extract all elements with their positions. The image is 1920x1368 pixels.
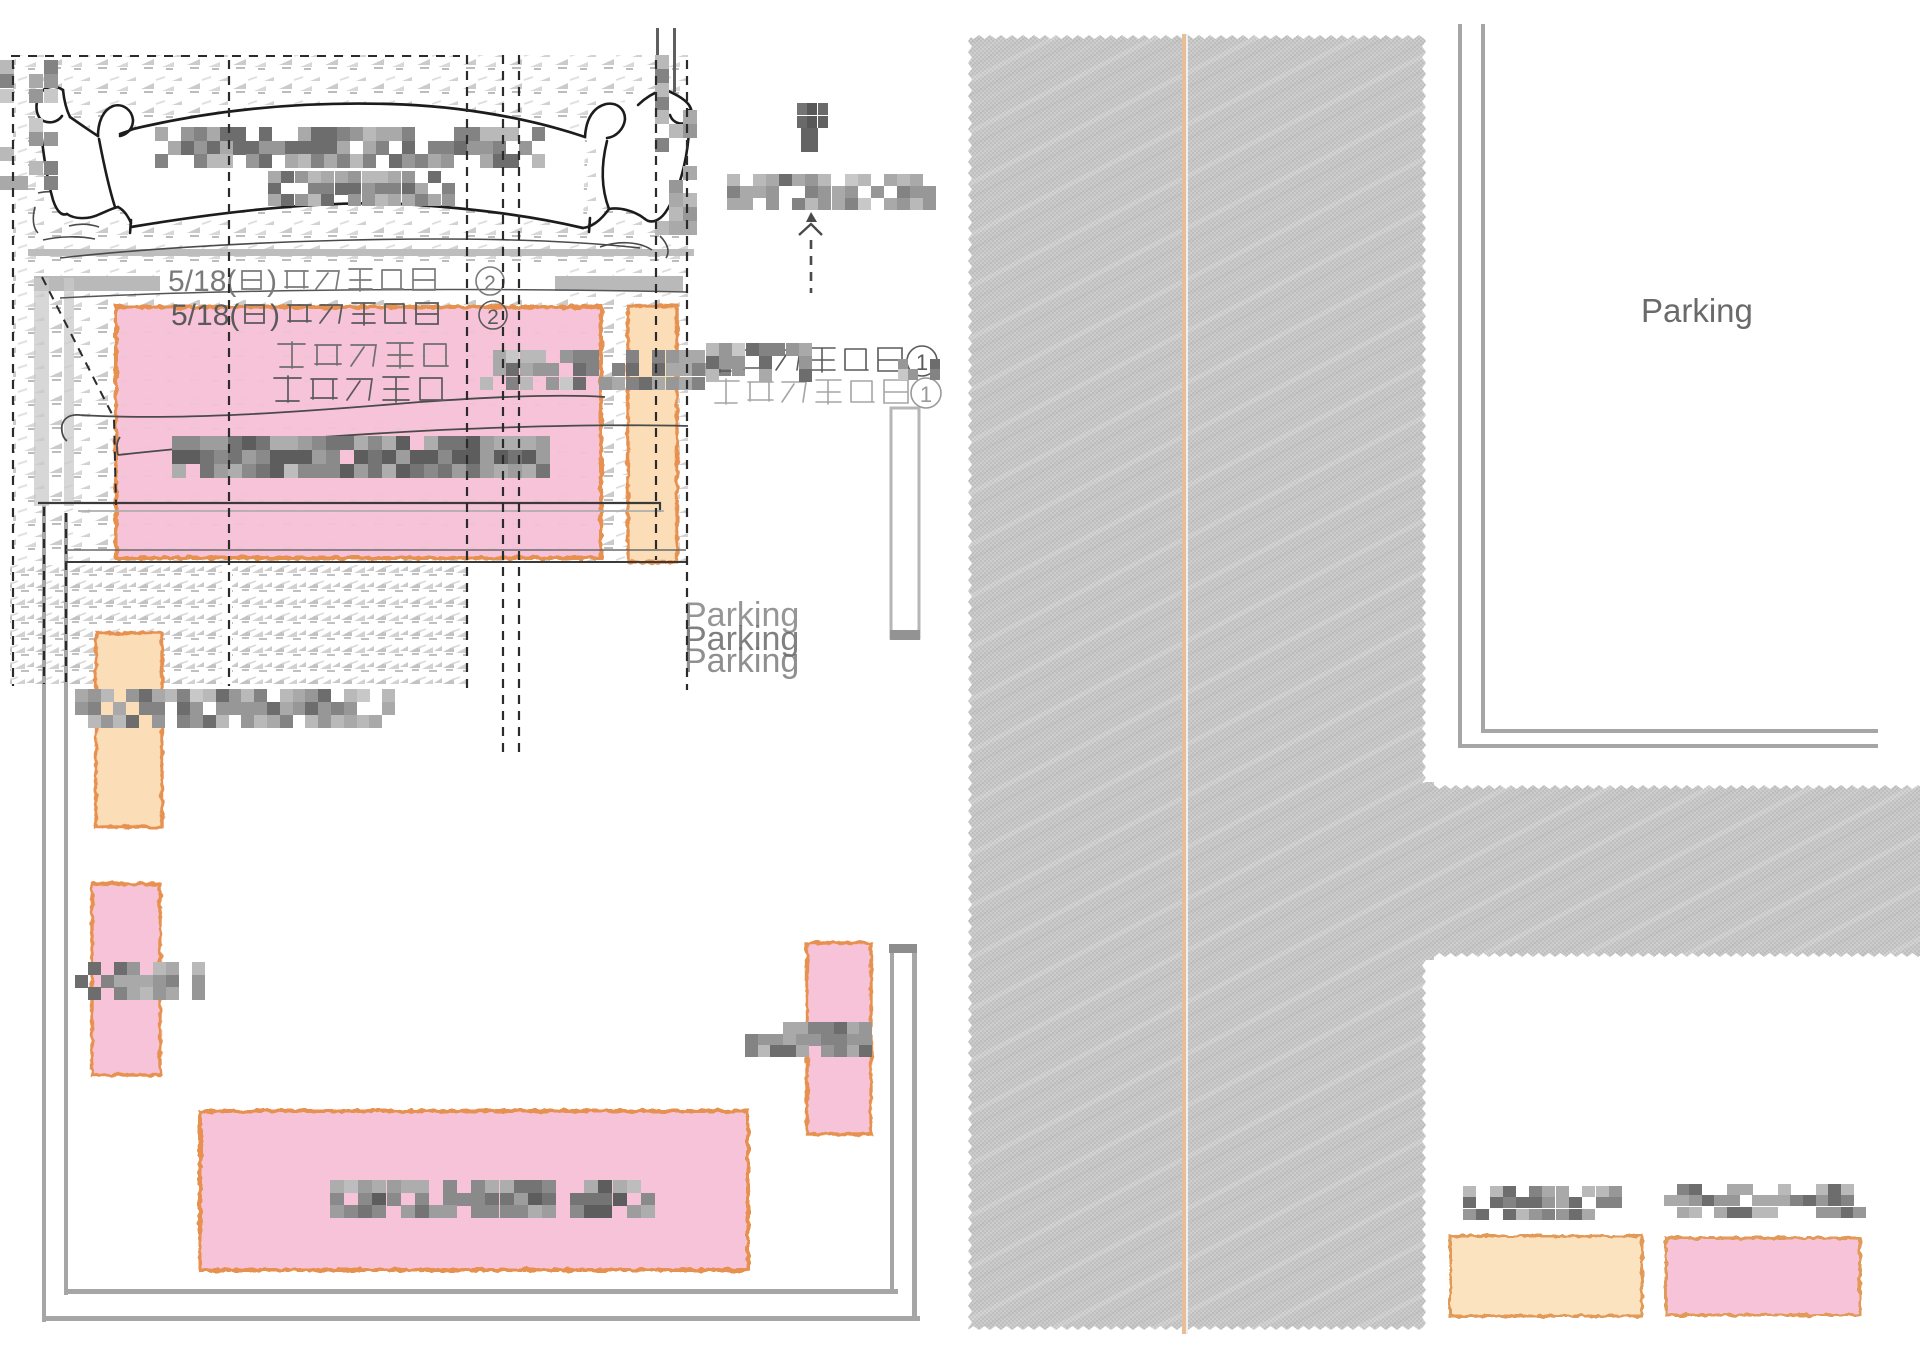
svg-text:1: 1 [920, 382, 932, 407]
svg-text:2: 2 [487, 306, 499, 329]
svg-text:Parking: Parking [684, 642, 799, 680]
svg-text:Parking: Parking [1641, 292, 1753, 329]
svg-text:): ) [270, 299, 280, 332]
svg-text:2: 2 [484, 272, 496, 295]
svg-text:5/18(: 5/18( [168, 265, 236, 298]
svg-text:): ) [267, 265, 277, 298]
